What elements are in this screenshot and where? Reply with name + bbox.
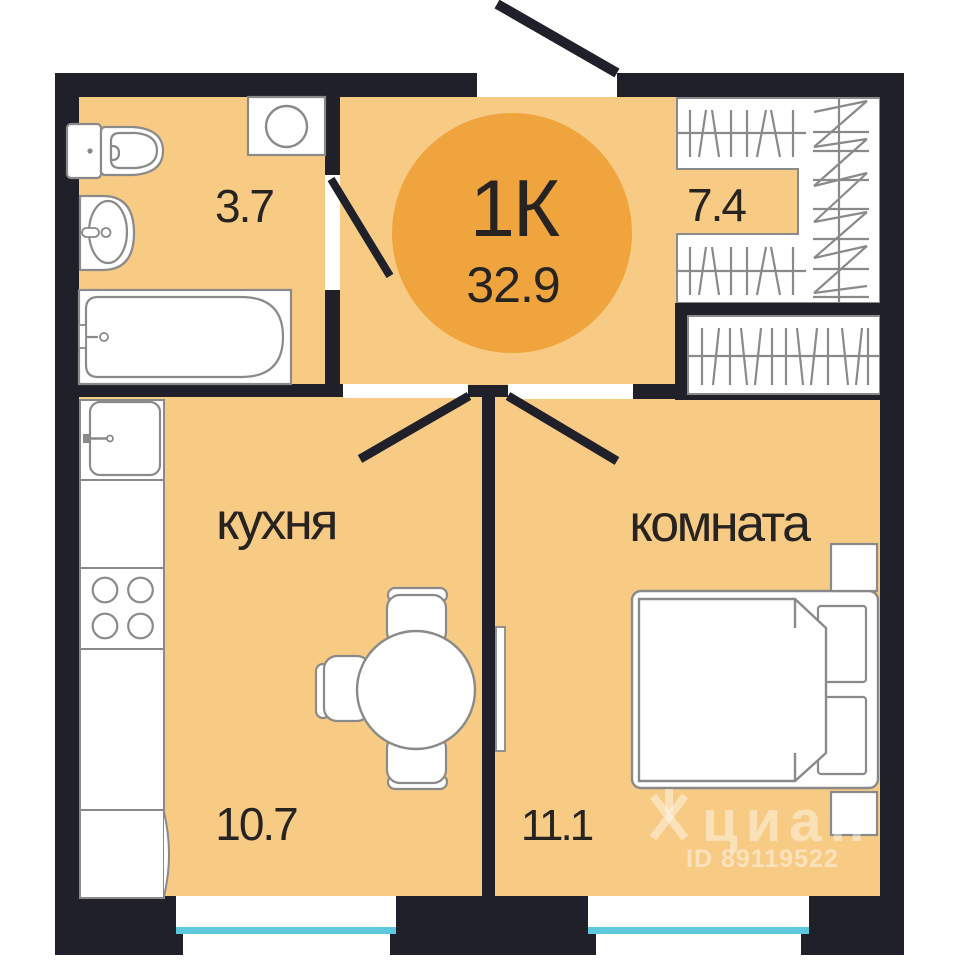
svg-text:10.7: 10.7 <box>215 798 297 850</box>
svg-text:11.1: 11.1 <box>521 801 593 850</box>
svg-text:кухня: кухня <box>216 493 336 551</box>
svg-text:1К: 1К <box>470 164 560 254</box>
svg-text:комната: комната <box>629 495 811 553</box>
svg-text:7.4: 7.4 <box>687 179 746 231</box>
svg-text:ID 89119522: ID 89119522 <box>686 845 839 873</box>
svg-text:3.7: 3.7 <box>215 180 273 232</box>
svg-text:32.9: 32.9 <box>466 257 559 313</box>
